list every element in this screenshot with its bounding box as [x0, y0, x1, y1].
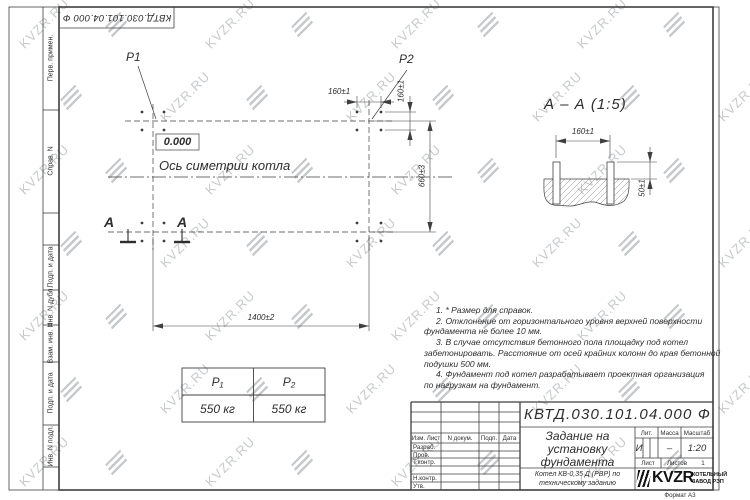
note-line: 1. * Размер для справок. — [424, 305, 720, 316]
loads-table-header-p2: P₂ — [253, 368, 325, 395]
row-label-nkontr: Н.контр. — [413, 475, 437, 482]
anchor-bolt-left — [553, 162, 560, 204]
scale-label: Масштаб — [681, 428, 713, 438]
note-line: 3. В случае отсутствия бетонного пола пл… — [424, 337, 720, 348]
lit-value: И — [635, 438, 643, 458]
drawing-title-line3: фундамента — [520, 455, 635, 468]
note-line: подушки 500 мм. — [424, 359, 720, 370]
margin-label-inv-n-dubl: Инв. N дубл. — [48, 287, 55, 328]
section-view-title: А – А (1:5) — [544, 96, 627, 113]
sheets-value: 1 — [693, 458, 713, 468]
margin-label-podp-i-data-2: Подп. и дата — [48, 372, 55, 413]
dim-section-bolt-spacing: 160±1 — [563, 127, 603, 136]
anchor-bolt-right — [607, 162, 614, 204]
dim-section-bolt-height: 50±1 — [638, 179, 647, 197]
level-mark: 0.000 — [156, 134, 199, 150]
row-label-razrab: Разраб. — [413, 444, 435, 451]
boiler-model-line2: техническому заданию — [520, 479, 635, 488]
dim-bolt-spacing-x: 160±1 — [328, 87, 350, 96]
title-block-doc-number: КВТД.030.101.04.000 Ф — [522, 402, 713, 427]
section-cut-marks — [120, 229, 190, 242]
loads-table-value-p1: 550 кг — [182, 395, 253, 422]
margin-label-sprav-n: Справ. N — [48, 146, 55, 175]
plan-dimensions — [153, 96, 436, 331]
row-label-tkontr: Т.контр. — [413, 459, 435, 466]
margin-label-perv-primen: Перв. примен. — [48, 35, 55, 82]
kvzr-logo-mark-icon — [636, 470, 651, 487]
dim-foundation-width: 1400±2 — [231, 313, 291, 322]
dim-bolt-spacing-y: 160±1 — [397, 80, 406, 102]
note-line: 2. Отклонение от горизонтального уровня … — [424, 316, 720, 327]
margin-label-vzam-inv-n: Взам. инв. N — [48, 323, 55, 364]
col-header-n-dokum: N докум. — [441, 433, 479, 443]
sheet-label: Лист — [635, 458, 661, 468]
mass-label: Масса — [658, 428, 681, 438]
format-label: Формат А3 — [650, 491, 710, 499]
row-label-prov: Пров. — [413, 452, 429, 459]
section-letter-1: А — [104, 214, 114, 230]
drawing-sheet: KVZR.RUKVZR.RUKVZR.RUKVZR.RUKVZR.RUKVZR.… — [0, 0, 750, 500]
mass-value: – — [658, 438, 681, 458]
note-line: забетонировать. Расстояние от осей крайн… — [424, 348, 720, 359]
margin-label-inv-n-podl: Инв. N подл. — [48, 425, 55, 466]
scale-value: 1:20 — [681, 438, 713, 458]
company-name-line1: КОТЕЛЬНЫЙ — [692, 472, 727, 478]
sheets-label: Листов — [661, 458, 693, 468]
col-header-podp: Подп. — [479, 433, 499, 443]
rotated-doc-number-stamp: КВТД.030.101.04.000 Ф — [60, 7, 174, 28]
note-line: фундамента не более 10 мм. — [424, 326, 720, 337]
note-line: 4. Фундамент под котел разрабатывает про… — [424, 369, 720, 380]
p1-leader-line — [138, 66, 156, 119]
lit-label: Лит. — [635, 428, 658, 438]
row-label-utv: Утв. — [413, 483, 425, 490]
technical-notes: 1. * Размер для справок. 2. Отклонение о… — [424, 305, 720, 391]
boiler-model-line1: Котел КВ-0,35 Д (РВР) по — [520, 470, 635, 479]
boiler-symmetry-axis-label: Ось симетрии котла — [159, 158, 290, 173]
loads-table-value-p2: 550 кг — [253, 395, 325, 422]
load-point-p2-label: P2 — [399, 52, 414, 66]
col-header-izm-list: Изм. Лист — [411, 433, 441, 443]
section-letter-2: А — [177, 214, 187, 230]
drawing-title-line2: установку — [520, 442, 635, 455]
kvzr-logo-text: KVZR — [652, 469, 694, 487]
drawing-title-line1: Задание на — [520, 429, 635, 442]
margin-label-podp-i-data-1: Подп. и дата — [48, 246, 55, 287]
loads-table-header-p1: P₁ — [182, 368, 253, 395]
dim-foundation-depth: 660±3 — [418, 165, 427, 187]
col-header-data: Дата — [499, 433, 520, 443]
company-name-line2: ЗАВОД РЭП — [692, 479, 724, 485]
note-line: по нагрузкам на фундамент. — [424, 380, 720, 391]
section-view-lines — [520, 135, 658, 212]
load-point-p1-label: P1 — [126, 50, 141, 64]
